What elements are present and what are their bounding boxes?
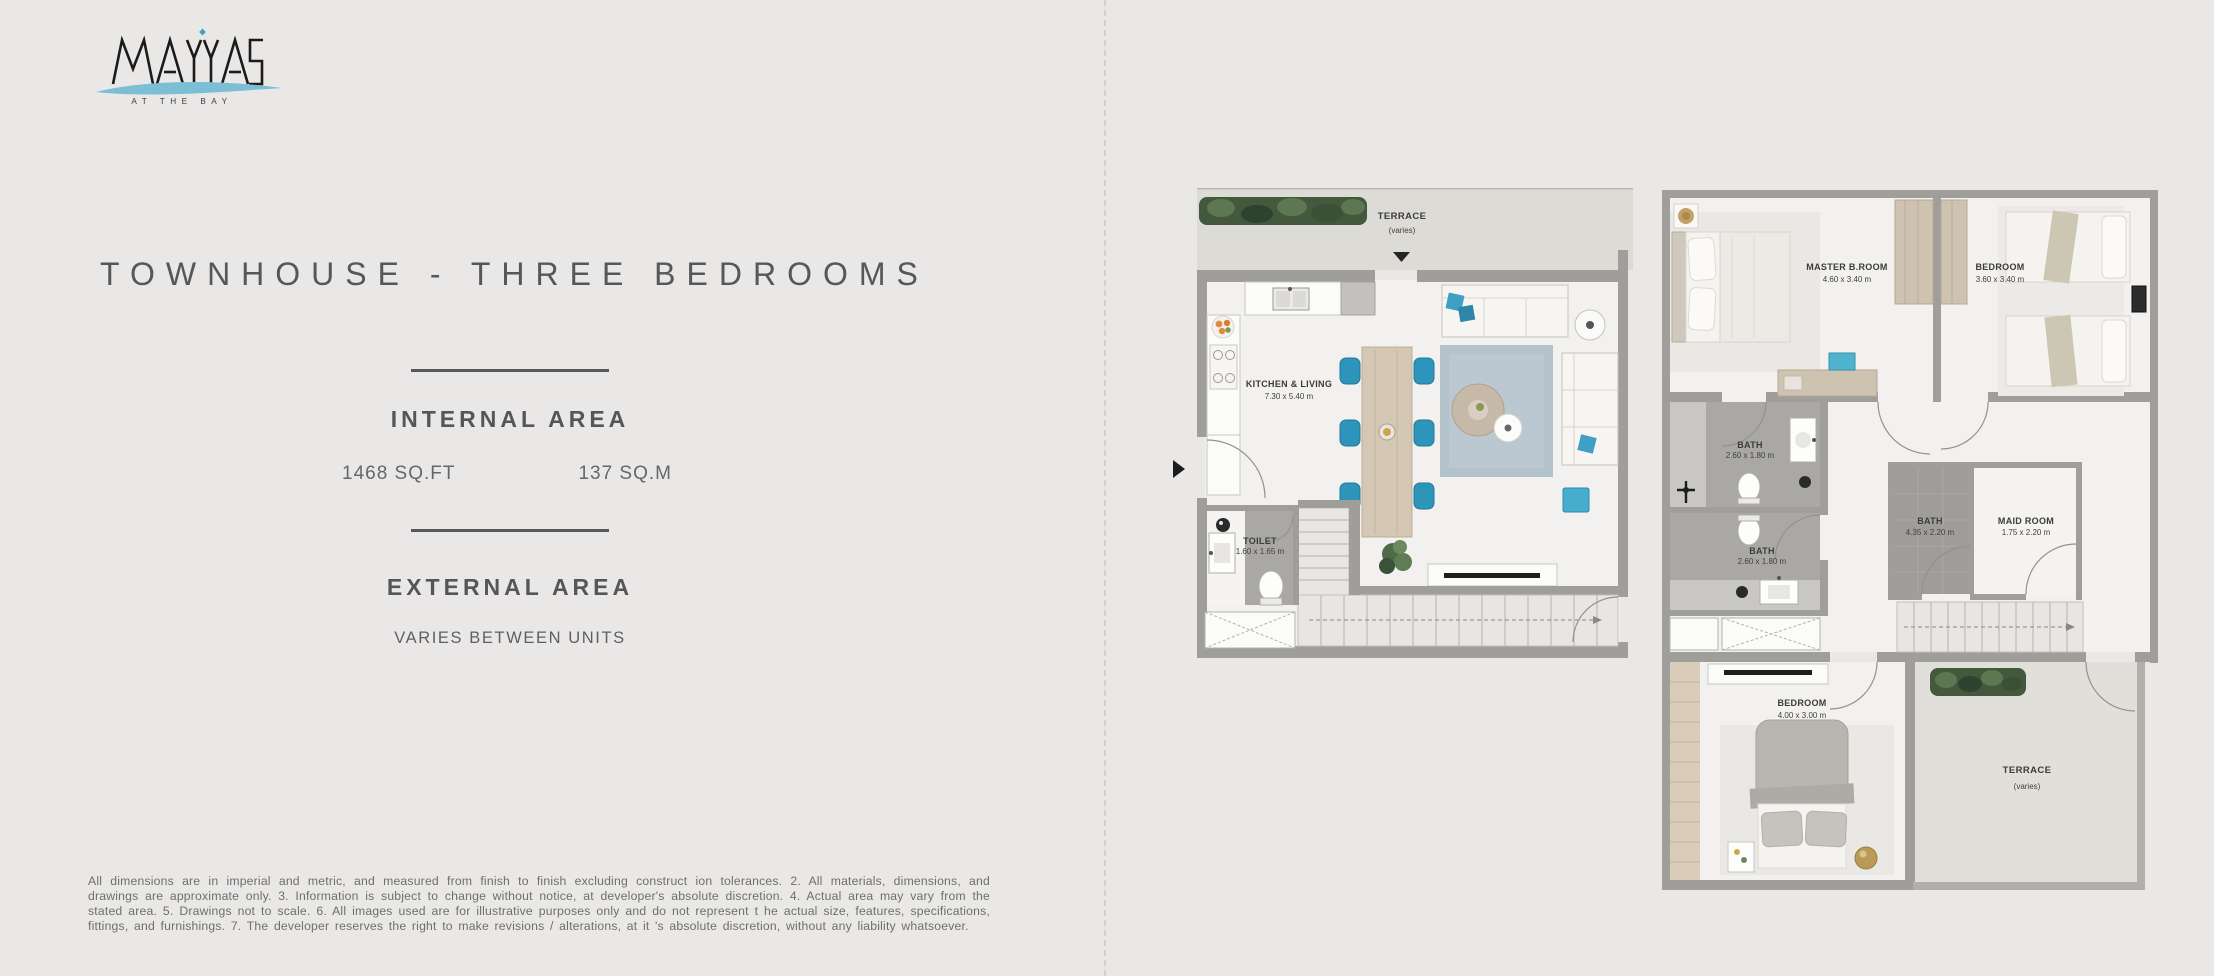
floorplan-first: MASTER B.ROOM 4.60 x 3.40 m BEDROOM 3.60… — [1662, 190, 2158, 896]
external-area-heading: EXTERNAL AREA — [298, 574, 722, 601]
ff-bath2-dims: 2.60 x 1.80 m — [1738, 557, 1787, 566]
logo-diamond-icon — [199, 29, 206, 36]
ff-hedge — [1930, 668, 2026, 696]
ff-wardrobe — [1895, 200, 1967, 304]
ff-maid-dims: 1.75 x 2.20 m — [2002, 528, 2051, 537]
brand-tagline: AT THE BAY — [131, 97, 232, 106]
divider-bottom — [411, 529, 609, 532]
gf-hedge — [1199, 197, 1367, 225]
ff-master-dims: 4.60 x 3.40 m — [1823, 275, 1872, 284]
brand-logo: AT THE BAY — [88, 22, 288, 117]
ff-master-label: MASTER B.ROOM — [1806, 262, 1887, 272]
gf-wc — [1259, 571, 1283, 601]
floorplan-ground: TERRACE (varies) KITCHEN & LIVING 7.30 x… — [1197, 188, 1633, 658]
gf-tv — [1444, 573, 1540, 578]
internal-area-metric: 137 SQ.M — [578, 463, 672, 485]
brand-logo-graphic: AT THE BAY — [88, 22, 288, 117]
divider-top — [411, 369, 609, 372]
ff-bedroom2-label: BEDROOM — [1975, 262, 2024, 272]
area-summary: INTERNAL AREA 1468 SQ.FT 137 SQ.M EXTERN… — [298, 369, 722, 648]
gf-toilet-label: TOILET — [1243, 536, 1277, 546]
ff-bath1-dims: 2.60 x 1.80 m — [1726, 451, 1775, 460]
ff-bedroom3-label: BEDROOM — [1777, 698, 1826, 708]
internal-area-heading: INTERNAL AREA — [298, 406, 722, 433]
page-fold-divider — [1104, 0, 1106, 976]
gf-shaft — [1205, 612, 1295, 648]
external-area-value: VARIES BETWEEN UNITS — [298, 629, 722, 648]
ff-bedroom3-dims: 4.00 x 3.00 m — [1778, 711, 1827, 720]
ff-tv3 — [1724, 670, 1812, 675]
ff-bath3-dims: 4.35 x 2.20 m — [1906, 528, 1955, 537]
gf-pouf — [1563, 488, 1589, 512]
ff-maid-label: MAID ROOM — [1998, 516, 2054, 526]
ff-bedroom2-dims: 3.60 x 3.40 m — [1976, 275, 2025, 284]
gf-fridge — [1341, 282, 1375, 315]
gf-half-wall — [1353, 586, 1622, 595]
ff-tv2 — [2132, 286, 2146, 312]
internal-area-imperial: 1468 SQ.FT — [342, 463, 456, 485]
internal-area-values: 1468 SQ.FT 137 SQ.M — [298, 463, 722, 485]
ff-bath1-label: BATH — [1737, 440, 1763, 450]
ff-terrace-label: TERRACE — [2003, 765, 2052, 776]
brand-wordmark — [113, 40, 263, 84]
gf-fruit-bowl — [1212, 316, 1234, 338]
ff-bath2-label: BATH — [1749, 546, 1775, 556]
entry-arrow-icon — [1173, 460, 1185, 478]
gf-terrace-sub: (varies) — [1389, 226, 1416, 235]
ff-stairs — [1897, 602, 2083, 652]
gf-kitchen-label: KITCHEN & LIVING — [1246, 379, 1332, 389]
disclaimer-text: All dimensions are in imperial and metri… — [88, 874, 990, 934]
gf-kitchen-dims: 7.30 x 5.40 m — [1265, 392, 1314, 401]
ff-master-headboard — [1672, 232, 1686, 342]
ff-stool — [1829, 353, 1855, 370]
gf-toilet-dims: 1.60 x 1.65 m — [1236, 547, 1285, 556]
gf-terrace-label: TERRACE — [1378, 211, 1427, 222]
ff-terrace-sub: (varies) — [2014, 782, 2041, 791]
page-title: TOWNHOUSE - THREE BEDROOMS — [100, 256, 929, 293]
ff-bath3-label: BATH — [1917, 516, 1943, 526]
ff-terrace-parapet — [2137, 662, 2145, 888]
ff-bedroom2 — [1998, 206, 2146, 396]
ff-shaft — [1670, 618, 1820, 650]
